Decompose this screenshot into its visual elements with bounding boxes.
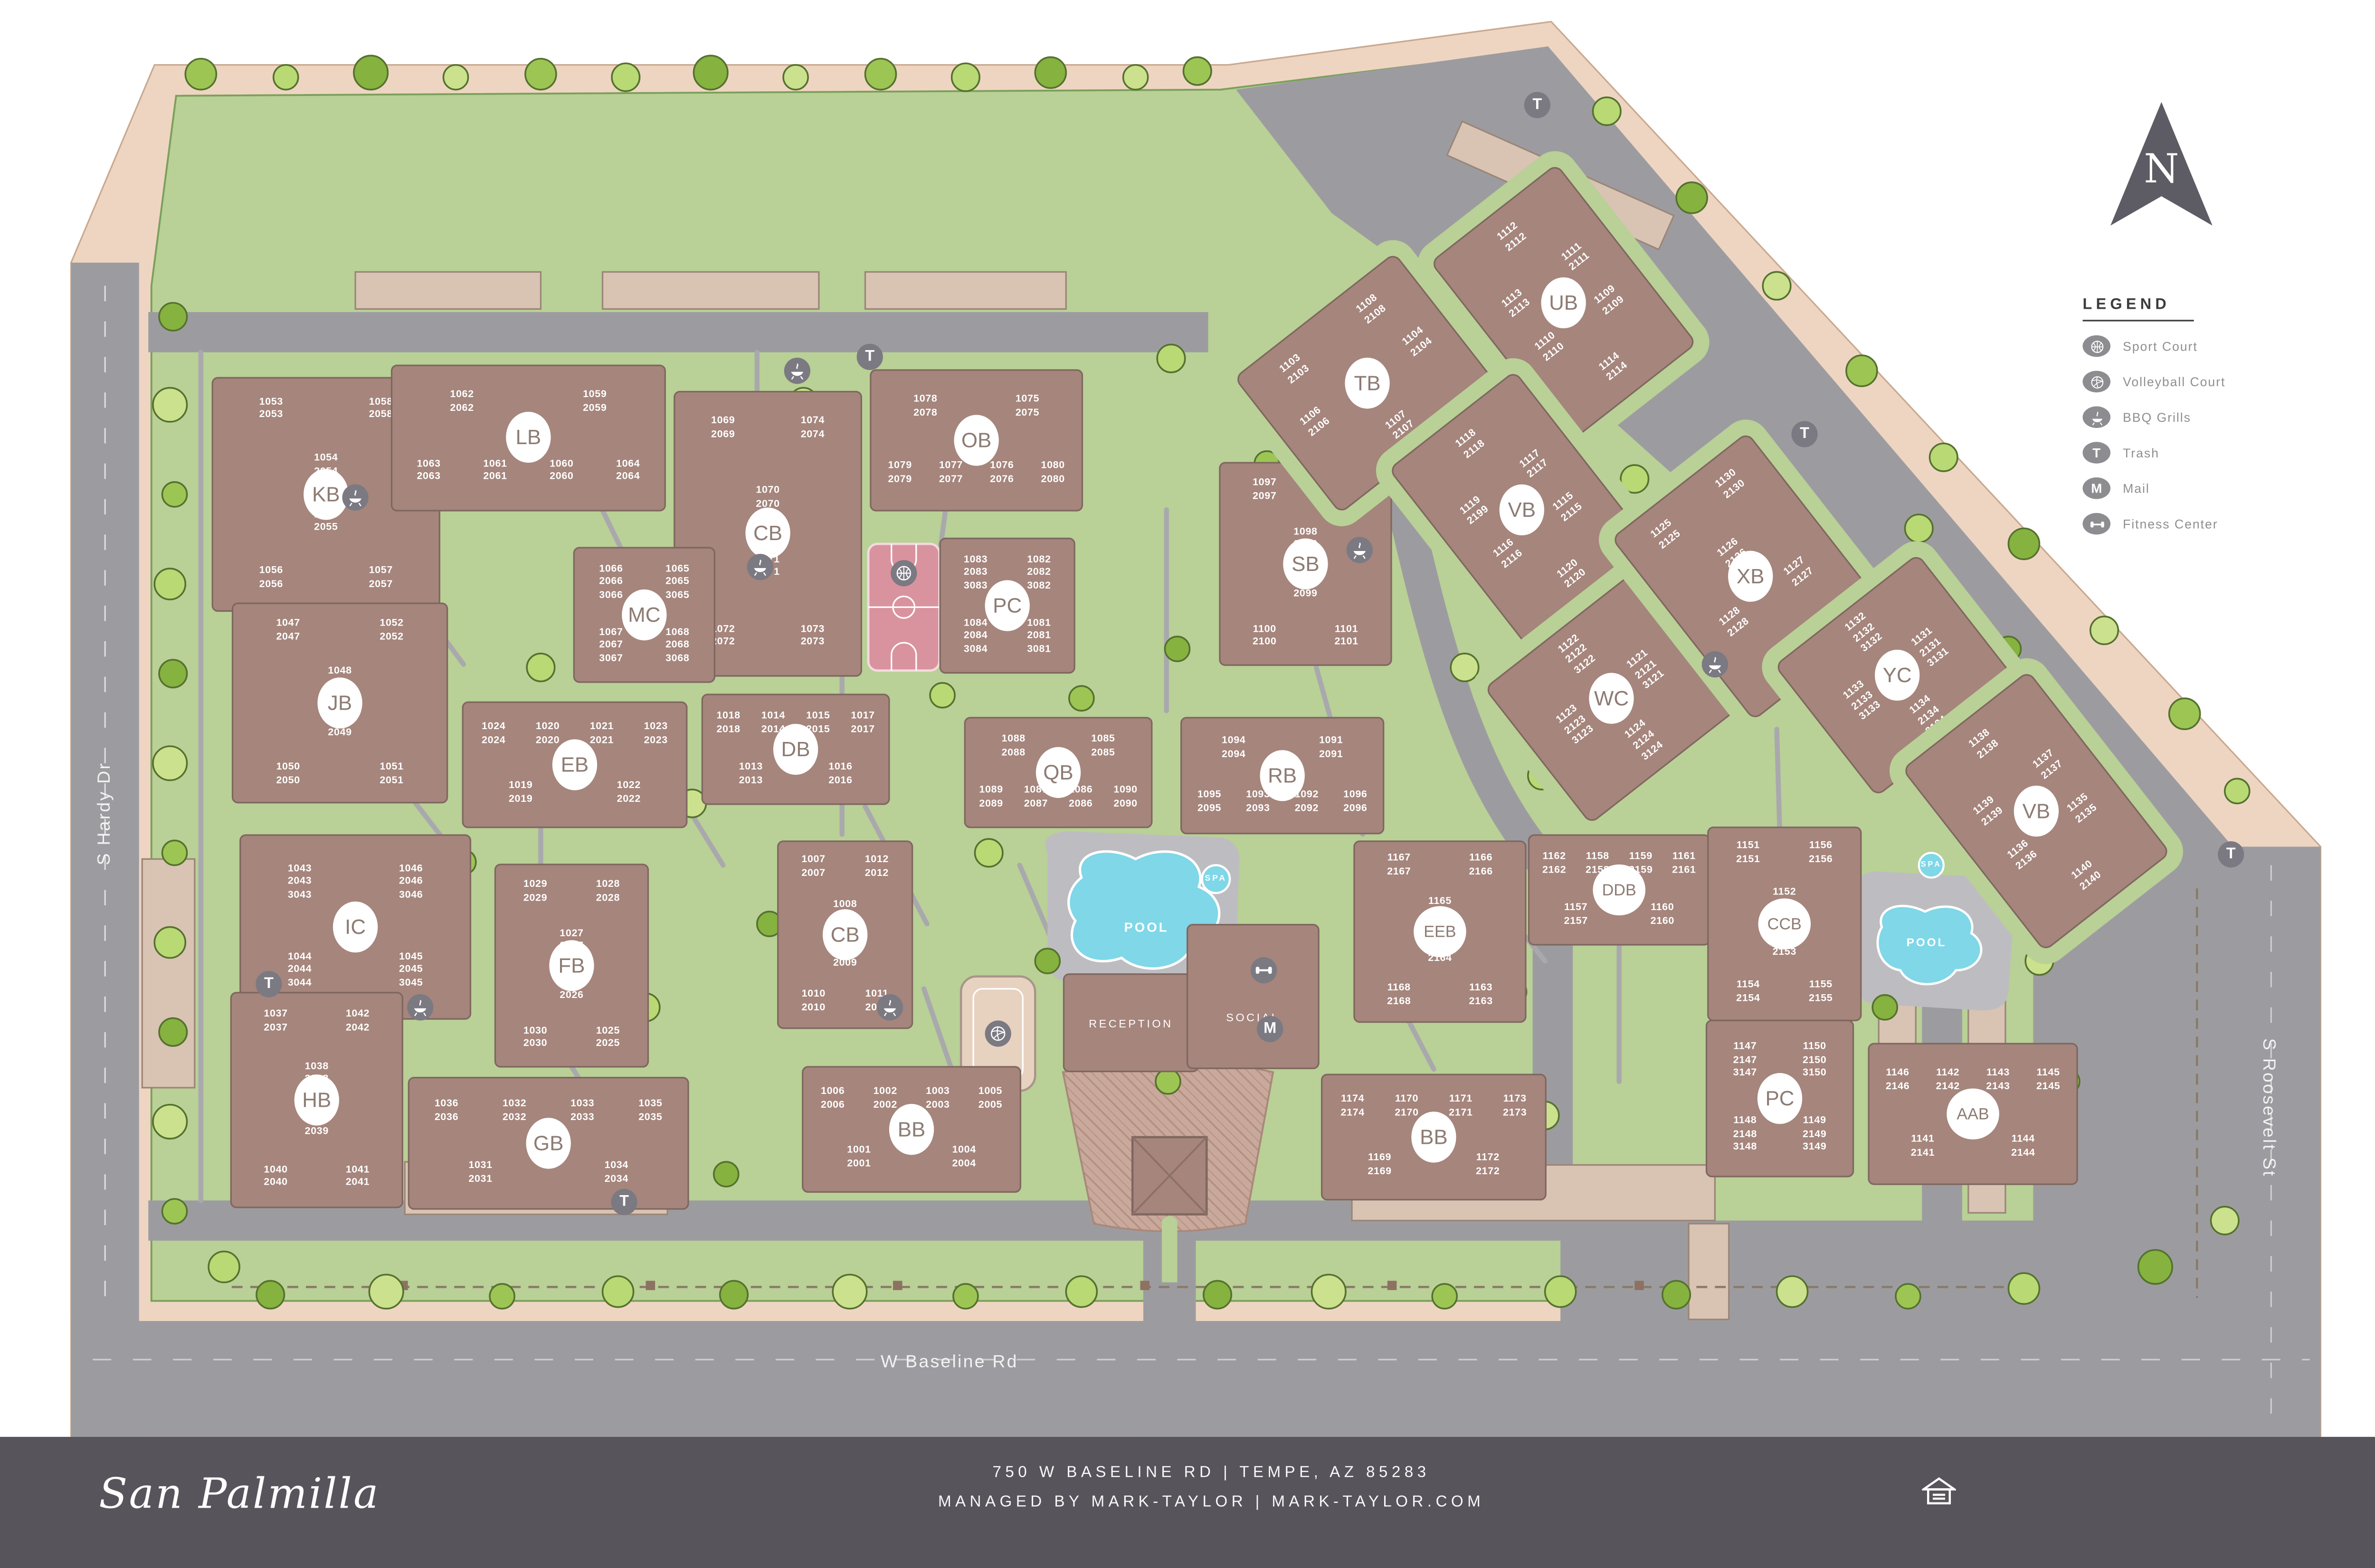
legend: LEGEND Sport CourtVolleyball CourtBBQ Gr… [2083, 296, 2284, 534]
tree [2025, 947, 2053, 975]
unit-cell: 11092109 [1593, 284, 1628, 319]
tree [159, 303, 187, 331]
tree [256, 1281, 285, 1309]
unit-cell: 10592059 [583, 390, 607, 416]
unit-cell: 10852085 [1091, 734, 1115, 760]
unit-cell: 11162116 [1491, 537, 1526, 572]
unit-cell: 106820683068 [665, 627, 689, 666]
building-QB: 1088208810852085108920891087208710862086… [964, 717, 1153, 828]
building-badge-RB: RB [1260, 750, 1304, 801]
tree [274, 65, 298, 90]
legend-item-mail: MMail [2083, 477, 2284, 499]
tree [443, 65, 468, 90]
unit-cell: 11282128 [1718, 606, 1753, 641]
unit-cell: 113421343134 [1908, 694, 1951, 740]
tree [1123, 65, 1148, 90]
unit-cell: 10942094 [1222, 735, 1245, 762]
unit-cell: 10742074 [801, 416, 825, 443]
social-building: SOCIAL [1187, 924, 1320, 1069]
unit-cell: 10172017 [851, 711, 874, 737]
tree [162, 840, 187, 865]
building-HB: 1037203710422042103820381039203910402040… [230, 992, 403, 1208]
unit-cell: 11722172 [1476, 1153, 1500, 1180]
building-LB: 1062206210592059106320631061206110602060… [391, 364, 666, 511]
unit-cell: 10622062 [450, 390, 474, 416]
unit-cell: 11032103 [1278, 352, 1313, 388]
tree [1763, 272, 1791, 300]
tree [1662, 1281, 1691, 1309]
building-badge-TB: TB [1345, 358, 1389, 409]
legend-item-label: Volleyball Court [2123, 375, 2225, 389]
unit-cell: 11192199 [1458, 494, 1493, 529]
building-MC: 1066206630661065206530651067206730671068… [573, 547, 715, 683]
unit-cell: 10022002 [874, 1087, 897, 1113]
unit-cell: 10182018 [716, 711, 740, 737]
unit-cell: 10532053 [259, 397, 283, 423]
unit-cell: 11122112 [1495, 220, 1530, 256]
unit-cell: 11082108 [1355, 293, 1390, 328]
fitness-icon [1251, 957, 1277, 983]
tree [1035, 57, 1066, 88]
unit-cell: 10952095 [1197, 789, 1221, 816]
unit-cell: 10252025 [596, 1026, 620, 1052]
unit-cell: 11002100 [1253, 624, 1276, 650]
street-label-roosevelt: S Roosevelt St [2259, 1038, 2277, 1178]
unit-cell: 10582058 [369, 397, 393, 423]
building-OB: 1078207810752075107920791077207710762076… [870, 369, 1083, 511]
unit-cell: 10782078 [913, 394, 937, 420]
bbq-icon [877, 994, 903, 1020]
building-CCB: 1151215111562156115221521153215311542154… [1707, 827, 1862, 1021]
mail-icon: M [1257, 1016, 1283, 1042]
tree [952, 63, 980, 91]
unit-cell: 10892089 [979, 785, 1003, 811]
tree [2090, 617, 2118, 645]
unit-cell: 115021503150 [1803, 1042, 1826, 1082]
unit-cell: 10302030 [523, 1026, 547, 1052]
unit-cell: 10192019 [509, 781, 532, 808]
unit-cell: 11382138 [1967, 728, 2003, 763]
mail-icon: M [2083, 477, 2111, 499]
unit-cell: 10962096 [1343, 789, 1367, 816]
tree [2211, 1207, 2239, 1235]
unit-cell: 11662166 [1469, 854, 1492, 880]
legend-title: LEGEND [2083, 296, 2194, 321]
unit-cell: 10032003 [926, 1087, 950, 1113]
unit-cell: 108220823082 [1027, 554, 1051, 594]
tree [612, 63, 640, 91]
unit-cell: 11512151 [1736, 841, 1760, 868]
community-logo: San Palmilla [99, 1471, 380, 1519]
tree [1156, 1069, 1180, 1094]
street-label-baseline: W Baseline Rd [881, 1353, 1018, 1372]
building-BB: 1006200610022002100320031005200510012001… [802, 1066, 1021, 1193]
building-badge-SB: SB [1283, 539, 1328, 589]
unit-cell: 10512051 [380, 761, 403, 788]
tree [2008, 528, 2039, 559]
building-badge-YC: YC [1875, 650, 1919, 701]
building-badge-PC: PC [985, 580, 1030, 631]
building-BB: 1174217411702170117121711173217311692169… [1321, 1074, 1547, 1201]
unit-cell: 10132013 [739, 761, 763, 788]
unit-cell: 11732173 [1503, 1094, 1527, 1121]
tree [865, 59, 896, 90]
unit-cell: 11252125 [1649, 518, 1684, 553]
tree [162, 482, 187, 507]
tree [975, 839, 1003, 867]
tree [1593, 97, 1621, 125]
tree [1204, 1281, 1232, 1309]
sport-icon [2083, 335, 2111, 357]
unit-cell: 10352035 [638, 1099, 662, 1126]
legend-item-label: BBQ Grills [2123, 410, 2191, 424]
unit-cell: 106520653065 [665, 563, 689, 603]
legend-item-trash: TTrash [2083, 442, 2284, 464]
unit-cell: 112421243124 [1624, 718, 1667, 764]
unit-cell: 10102010 [802, 988, 826, 1015]
tree [209, 1252, 239, 1283]
street-label-hardy: S Hardy Dr [96, 762, 114, 865]
tree [1905, 514, 1933, 542]
unit-cell: 10012001 [847, 1146, 871, 1172]
unit-cell: 10902090 [1113, 785, 1137, 811]
unit-cell: 11712171 [1449, 1094, 1472, 1121]
unit-cell: 106620663066 [599, 563, 623, 603]
building-badge-CB: CB [823, 909, 867, 960]
volleyball-icon [2083, 371, 2111, 393]
unit-cell: 11562156 [1809, 841, 1833, 868]
unit-cell: 11442144 [2011, 1134, 2035, 1160]
unit-cell: 11102110 [1533, 330, 1568, 365]
unit-cell: 11402140 [2070, 859, 2105, 895]
building-badge-BB: BB [1411, 1112, 1456, 1162]
unit-cell: 11602160 [1651, 902, 1674, 929]
unit-cell: 113221323132 [1843, 611, 1887, 657]
tree [930, 683, 955, 708]
bbq-icon [1347, 537, 1373, 563]
building-JB: 1047204710522052104820481049204910502050… [232, 603, 448, 804]
footer-managed: MANAGED BY MARK-TAYLOR | MARK-TAYLOR.COM [938, 1494, 1484, 1511]
building-badge-BB: BB [889, 1104, 934, 1155]
unit-cell: 104420443044 [288, 951, 312, 991]
tree [603, 1276, 634, 1307]
building-EEB: 1167216711662166116521651164216411682168… [1353, 840, 1526, 1023]
building-GB: 1036203610322032103320331035203510312031… [408, 1077, 689, 1210]
building-badge-DB: DB [773, 724, 818, 775]
sport-icon [891, 560, 917, 586]
tree [162, 1199, 187, 1224]
unit-cell: 10212021 [590, 722, 614, 749]
building-badge-FB: FB [549, 940, 594, 991]
unit-cell: 11202120 [1555, 557, 1590, 592]
building-badge-VB: VB [2014, 786, 2059, 836]
unit-cell: 11432143 [1986, 1067, 2010, 1094]
unit-cell: 11362136 [2006, 838, 2041, 874]
unit-cell: 10792079 [888, 460, 912, 487]
building-badge-EEB: EEB [1414, 906, 1466, 957]
tree [1432, 1284, 1457, 1309]
unit-cell: 104520453045 [399, 951, 423, 991]
bbq-icon [407, 994, 433, 1020]
unit-cell: 10322032 [503, 1099, 526, 1126]
tree [1066, 1276, 1097, 1307]
tree [1069, 686, 1094, 711]
tree [1621, 465, 1649, 493]
tree [2169, 698, 2200, 729]
building-badge-VB: VB [1500, 485, 1544, 535]
unit-cell: 11672167 [1387, 854, 1411, 880]
unit-cell: 10312031 [468, 1161, 492, 1188]
unit-cell: 11412141 [1911, 1134, 1935, 1160]
unit-cell: 10972097 [1253, 478, 1276, 504]
unit-cell: 11742174 [1340, 1094, 1364, 1121]
unit-cell: 10602060 [550, 458, 573, 485]
building-badge-JB: JB [317, 677, 362, 728]
building-PC: 1147214731471150215031501148214831481149… [1706, 1020, 1854, 1178]
building-EB: 1024202410202020102120211023202310192019… [462, 702, 688, 828]
trash-icon: T [256, 971, 282, 997]
unit-cell: 11372137 [2032, 748, 2067, 784]
unit-cell: 10632063 [417, 458, 440, 485]
unit-cell: 10732073 [801, 624, 825, 650]
unit-cell: 11542154 [1736, 980, 1760, 1007]
unit-cell: 10052005 [978, 1087, 1002, 1113]
building-badge-LB: LB [506, 412, 551, 463]
unit-cell: 10752075 [1016, 394, 1039, 420]
footer-bar: San Palmilla 750 W BASELINE RD | TEMPE, … [0, 1437, 2375, 1568]
unit-cell: 11702170 [1395, 1094, 1418, 1121]
unit-cell: 10242024 [482, 722, 505, 749]
building-DDB: 1162216211582158115921591161216111572157… [1528, 834, 1710, 945]
legend-item-label: Fitness Center [2123, 517, 2218, 531]
tree [154, 569, 185, 599]
building-badge-MC: MC [622, 589, 666, 640]
bbq-icon [747, 554, 773, 580]
unit-cell: 108420843084 [964, 618, 988, 657]
tree [720, 1281, 748, 1309]
unit-cell: 10422042 [346, 1009, 370, 1036]
bbq-icon [2083, 406, 2111, 428]
unit-cell: 11042104 [1401, 325, 1436, 361]
unit-cell: 10042004 [952, 1146, 976, 1172]
building-badge-AAB: AAB [1947, 1088, 1999, 1139]
unit-cell: 11132113 [1500, 287, 1534, 322]
building-badge-EB: EB [552, 739, 597, 790]
legend-item-volleyball: Volleyball Court [2083, 371, 2284, 393]
unit-cell: 10372037 [264, 1009, 287, 1036]
unit-cell: 10882088 [1002, 734, 1026, 760]
tree [1451, 654, 1479, 682]
unit-cell: 10282028 [596, 879, 620, 906]
trash-icon: T [2218, 841, 2244, 867]
tree [833, 1274, 867, 1309]
unit-cell: 10402040 [264, 1164, 287, 1191]
unit-cell: 10232023 [644, 722, 668, 749]
tree [490, 1284, 514, 1309]
trash-icon: T [857, 344, 883, 370]
volleyball-icon [985, 1020, 1011, 1046]
trash-icon: T [1524, 92, 1550, 118]
footer-address: 750 W BASELINE RD | TEMPE, AZ 85283 [938, 1464, 1484, 1482]
building-RB: 1094209410912091109520951093209310922092… [1180, 717, 1384, 834]
unit-cell: 10522052 [380, 618, 403, 645]
building-badge-KB: KB [304, 469, 348, 520]
building-badge-CB: CB [745, 507, 790, 558]
unit-cell: 114921493149 [1803, 1116, 1826, 1156]
tree [153, 1105, 187, 1139]
unit-cell: 11572157 [1564, 902, 1587, 929]
legend-item-label: Mail [2123, 481, 2150, 495]
unit-cell: 10502050 [276, 761, 300, 788]
legend-item-label: Sport Court [2123, 339, 2198, 353]
unit-cell: 11072107 [1383, 409, 1418, 444]
unit-cell: 112221223122 [1556, 632, 1599, 678]
tree [1545, 1276, 1576, 1307]
unit-cell: 10802080 [1041, 460, 1064, 487]
unit-cell: 11632163 [1469, 983, 1492, 1010]
tree [1183, 57, 1211, 85]
unit-cell: 11682168 [1387, 983, 1411, 1010]
unit-cell: 10572057 [369, 566, 393, 592]
unit-cell: 11112111 [1559, 240, 1594, 275]
equal-housing-icon [1922, 1477, 1956, 1515]
building-FB: 1029202910282028102720271026202610302030… [494, 864, 649, 1067]
unit-cell: 11552155 [1809, 980, 1833, 1007]
unit-cell: 10342034 [605, 1161, 628, 1188]
building-badge-UB: UB [1541, 277, 1586, 328]
trash-icon: T [1791, 421, 1817, 447]
unit-cell: 10062006 [821, 1087, 845, 1113]
unit-cell: 11182118 [1454, 428, 1489, 463]
unit-cell: 10562056 [259, 566, 283, 592]
tree [185, 59, 216, 90]
unit-cell: 11152115 [1551, 491, 1586, 526]
building-badge-GB: GB [526, 1118, 571, 1169]
tree [354, 56, 388, 90]
tree [369, 1274, 403, 1309]
legend-item-fitness: Fitness Center [2083, 513, 2284, 535]
unit-cell: 11302130 [1714, 467, 1749, 503]
unit-cell: 10162016 [828, 761, 852, 788]
pool-east-label: POOL [1907, 935, 1947, 949]
tree [783, 65, 808, 90]
legend-item-label: Trash [2123, 446, 2159, 459]
unit-cell: 108120813081 [1027, 618, 1051, 657]
unit-cell: 10642064 [616, 458, 640, 485]
footer-address-block: 750 W BASELINE RD | TEMPE, AZ 85283 MANA… [938, 1464, 1484, 1511]
tree [159, 1018, 187, 1046]
site-map-page: S Hardy Dr W Baseline Rd S Roosevelt St … [0, 0, 2375, 1568]
spa-main-label: SPA [1205, 874, 1227, 884]
building-badge-HB: HB [294, 1074, 339, 1125]
reception-label: RECEPTION [1089, 1016, 1173, 1030]
unit-cell: 10772077 [939, 460, 963, 487]
building-badge-DDB: DDB [1593, 865, 1645, 915]
tree [953, 1284, 978, 1309]
unit-cell: 10612061 [483, 458, 507, 485]
tree [1872, 995, 1897, 1020]
building-badge-WC: WC [1589, 673, 1634, 724]
tree [2008, 1273, 2039, 1304]
unit-cell: 10412041 [346, 1164, 370, 1191]
unit-cell: 11422142 [1936, 1067, 1960, 1094]
unit-cell: 10362036 [435, 1099, 458, 1126]
tree [1846, 355, 1877, 386]
unit-cell: 11142114 [1597, 350, 1632, 385]
tree [1776, 1276, 1807, 1307]
tree [1035, 949, 1060, 973]
unit-cell: 10472047 [276, 618, 300, 645]
building-DB: 1018201810142014101520151017201710132013… [702, 694, 890, 805]
north-arrow: N [2089, 90, 2236, 244]
bbq-icon [342, 485, 368, 511]
unit-cell: 11272127 [1782, 555, 1817, 591]
building-PC: 1083208330831082208230821084208430841081… [940, 538, 1075, 674]
unit-cell: 11172117 [1518, 447, 1552, 483]
legend-item-sport: Sport Court [2083, 335, 2284, 357]
tree [2138, 1250, 2173, 1284]
tree [527, 654, 555, 682]
tree [1165, 637, 1189, 661]
building-AAB: 1146214611422142114321431145214511412141… [1868, 1043, 2078, 1185]
tree [525, 59, 556, 90]
tree [2225, 779, 2250, 803]
unit-cell: 11622162 [1542, 851, 1566, 878]
unit-cell: 10122012 [865, 854, 889, 881]
building-badge-IC: IC [333, 902, 378, 952]
tree [693, 56, 728, 90]
unit-cell: 106720673067 [599, 627, 623, 666]
unit-cell: 104320433043 [288, 863, 312, 903]
walkway [1776, 729, 1780, 834]
tree [1996, 637, 2021, 661]
reception-building: RECEPTION [1063, 973, 1199, 1072]
unit-cell: 10202020 [536, 722, 560, 749]
bbq-icon [784, 358, 810, 384]
building-badge-QB: QB [1036, 747, 1081, 798]
tree [1896, 1284, 1920, 1309]
bbq-icon [1702, 651, 1728, 677]
fitness-icon [2083, 513, 2111, 535]
unit-cell: 10332033 [570, 1099, 594, 1126]
tree [1311, 1274, 1346, 1309]
tree [1676, 182, 1707, 213]
unit-cell: 114821483148 [1733, 1116, 1757, 1156]
pool-main-label: POOL [1124, 919, 1168, 935]
tree [159, 660, 187, 688]
unit-cell: 114721473147 [1733, 1042, 1757, 1082]
unit-cell: 11692169 [1368, 1153, 1391, 1180]
unit-cell: 104620463046 [399, 863, 423, 903]
unit-cell: 10762076 [990, 460, 1014, 487]
building-badge-OB: OB [954, 415, 998, 466]
unit-cell: 11352135 [2066, 792, 2101, 827]
trash-icon: T [611, 1189, 637, 1215]
tree [714, 1162, 739, 1187]
unit-cell: 10912091 [1319, 735, 1343, 762]
building-badge-XB: XB [1728, 551, 1773, 602]
unit-cell: 11452145 [2036, 1067, 2060, 1094]
unit-cell: 11462146 [1886, 1067, 1909, 1094]
tree [153, 388, 187, 422]
unit-cell: 10222022 [617, 781, 641, 808]
tree [1157, 344, 1185, 372]
building-badge-PC: PC [1757, 1073, 1802, 1124]
unit-cell: 10072007 [801, 854, 825, 881]
site-map: S Hardy Dr W Baseline Rd S Roosevelt St … [0, 0, 2375, 1437]
unit-cell: 10292029 [523, 879, 547, 906]
legend-item-bbq: BBQ Grills [2083, 406, 2284, 428]
